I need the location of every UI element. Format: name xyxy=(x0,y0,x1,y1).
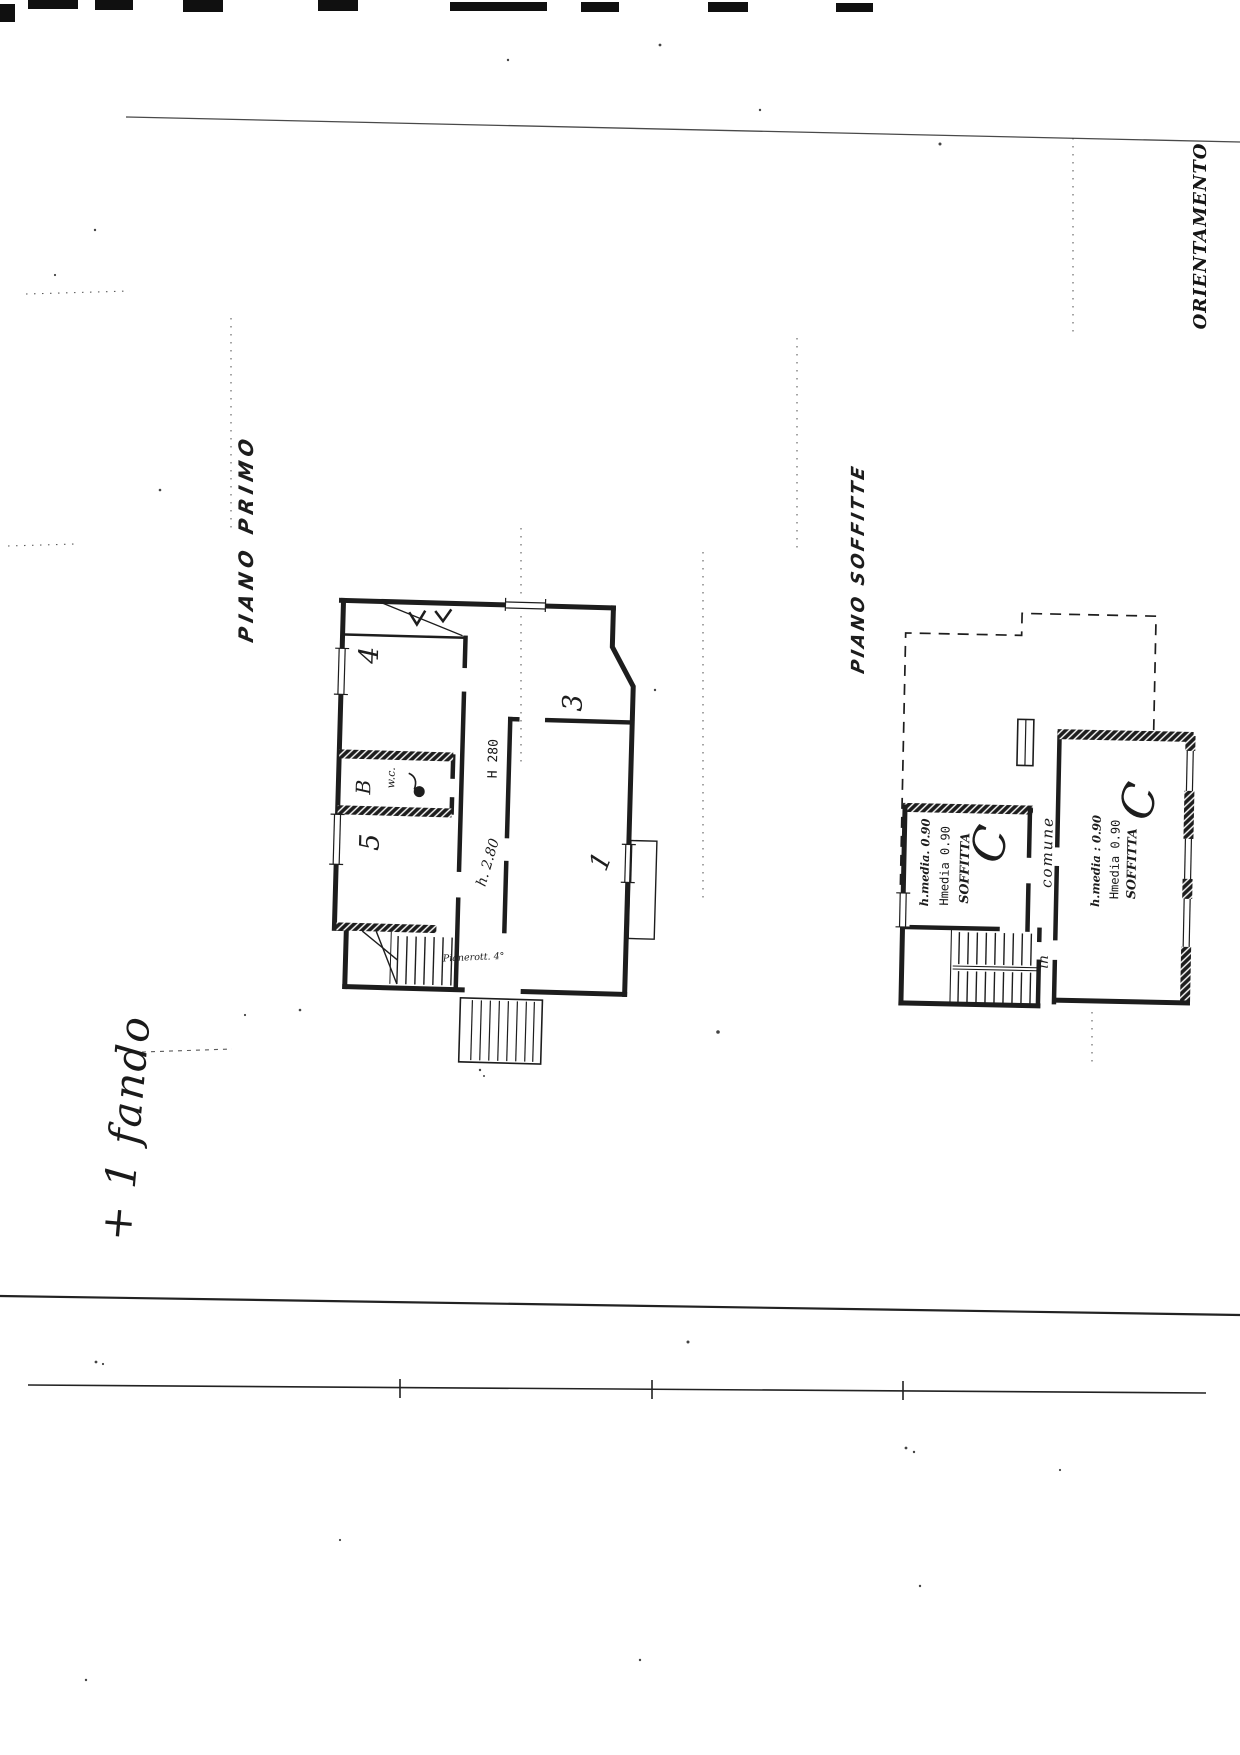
entrance-steps xyxy=(459,986,543,1064)
floorplan-drawing: PIANO PRIMO PIANO SOFFITTE ORIENTAMENTO … xyxy=(0,0,1240,1755)
wall-hatched xyxy=(1180,947,1191,1005)
right-room-height-typed: Hmedia 0.90 xyxy=(1107,819,1123,899)
scan-top-dashes xyxy=(0,0,873,22)
room-label-4: 4 xyxy=(354,646,385,665)
plan2-title-label: PIANO SOFFITTE xyxy=(848,462,869,676)
height-typed: H 280 xyxy=(486,739,502,779)
balcony-top xyxy=(341,602,467,637)
wall-hatched xyxy=(903,803,1033,815)
bottom-border-lines xyxy=(0,1296,1240,1400)
stair-shared-comune: comune xyxy=(1037,816,1057,888)
right-room-flourish: C xyxy=(1107,777,1169,826)
wall-hatched xyxy=(1183,791,1194,839)
right-room-height-hand: h.media : 0.90 xyxy=(1088,815,1104,907)
orientation-label: ORIENTAMENTO xyxy=(1190,143,1211,330)
room-label-1: 1 xyxy=(583,848,618,875)
stair-note: Pianerott. 4° xyxy=(442,951,505,965)
height-hand: h. 2.80 xyxy=(474,837,503,889)
left-room-height-typed: Hmedia 0.90 xyxy=(937,826,953,906)
room-label-3: 3 xyxy=(558,694,589,712)
room-label-B: B xyxy=(351,779,375,795)
chimney-stub xyxy=(1017,719,1034,765)
left-room-height-hand: h.media. 0.90 xyxy=(917,818,933,906)
wall-hatched xyxy=(1057,729,1193,742)
right-room-name: SOFFITTA xyxy=(1123,828,1139,899)
stairs-plan2 xyxy=(950,930,1037,1004)
wall-hatched xyxy=(338,805,452,817)
wall-hatched xyxy=(1182,879,1192,899)
wall-hatched xyxy=(336,922,436,933)
floorplan-piano-primo: 4 3 B w.c. 5 1 H 280 h. 2.80 Pianerott. … xyxy=(324,593,664,1067)
toilet-fixture-seat xyxy=(408,773,416,789)
scanned-floorplan-sheet: PIANO PRIMO PIANO SOFFITTE ORIENTAMENTO … xyxy=(0,0,1240,1755)
wall-hatched xyxy=(1185,736,1195,751)
wall-hatched xyxy=(339,749,453,761)
plan1-title-label: PIANO PRIMO xyxy=(234,432,258,645)
scan-noise xyxy=(54,44,1061,1682)
stairs-plan1 xyxy=(361,931,452,985)
handwritten-note: + 1 fando xyxy=(91,1013,160,1243)
room-label-wc: w.c. xyxy=(384,767,398,789)
room-label-5: 5 xyxy=(355,833,386,851)
floorplan-piano-soffitte: h.media. 0.90 Hmedia 0.90 SOFFITTA C com… xyxy=(894,611,1198,1009)
stair-shared-in: in xyxy=(1036,955,1052,969)
